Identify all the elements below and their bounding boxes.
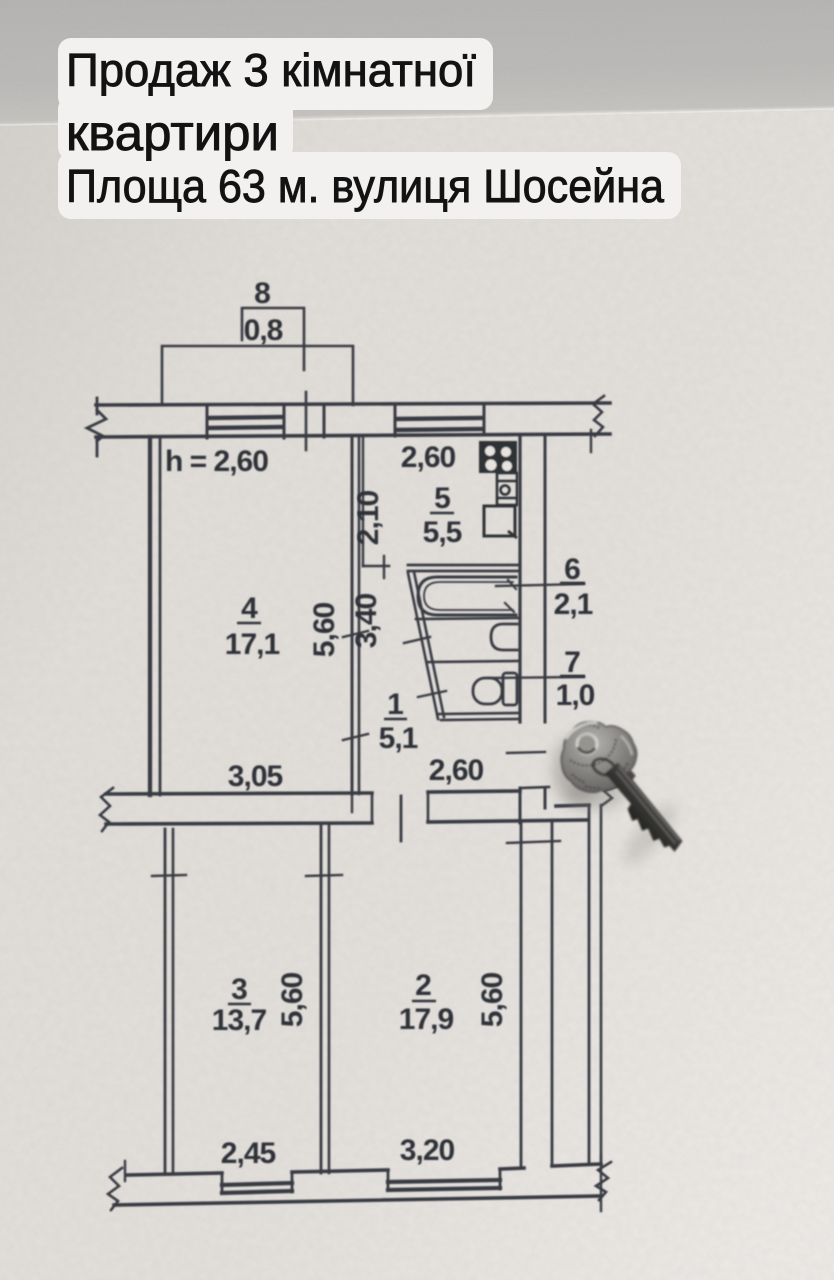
svg-text:3: 3 [231,973,247,1006]
svg-text:2,10: 2,10 [352,490,385,545]
svg-text:0,8: 0,8 [244,314,283,347]
svg-text:квартири: квартири [66,105,279,161]
svg-text:5,1: 5,1 [379,722,418,755]
svg-text:2,60: 2,60 [429,754,484,787]
svg-text:2: 2 [415,969,431,1002]
svg-text:2,60: 2,60 [401,441,456,474]
svg-text:2,1: 2,1 [554,588,593,621]
svg-text:5,60: 5,60 [276,972,309,1027]
svg-text:17,9: 17,9 [399,1003,454,1036]
svg-text:2,45: 2,45 [221,1137,276,1170]
svg-text:4: 4 [241,592,258,625]
svg-text:Площа 63 м. вулиця Шосейна: Площа 63 м. вулиця Шосейна [66,160,664,212]
svg-text:13,7: 13,7 [212,1004,267,1037]
svg-text:Продаж 3 кімнатної: Продаж 3 кімнатної [66,44,476,96]
svg-text:5: 5 [434,482,450,515]
svg-text:3,40: 3,40 [350,593,383,648]
svg-text:5,60: 5,60 [308,602,341,657]
svg-text:3,20: 3,20 [400,1134,455,1167]
svg-text:h = 2,60: h = 2,60 [165,445,268,478]
svg-text:6: 6 [564,553,580,586]
svg-text:7: 7 [564,646,580,679]
svg-text:5,5: 5,5 [423,516,462,549]
svg-text:3,05: 3,05 [228,760,283,793]
svg-text:8: 8 [254,277,270,310]
svg-text:5,60: 5,60 [476,972,509,1027]
svg-text:1,0: 1,0 [556,679,595,712]
svg-text:1: 1 [387,688,403,721]
svg-text:17,1: 17,1 [225,628,280,661]
